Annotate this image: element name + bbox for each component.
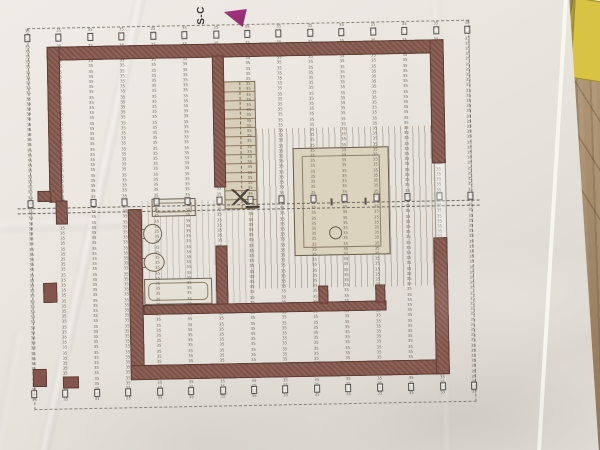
- rafter-line: 35 35 35 35 35 35 35 35 35 35 35 35 35 3…: [337, 22, 352, 402]
- wall-stub-right: [375, 284, 385, 302]
- section-line-break-mark: [246, 206, 260, 208]
- paper-sheet: 35 35 35 35 35 35 35 35 35 35 35 35 35 3…: [0, 0, 600, 450]
- wall-left-extension: [55, 200, 67, 224]
- rafter-line: 35 35 35 35 35 35 35 35 35 35 35 35 35 3…: [180, 25, 195, 405]
- wall-right-upper: [429, 39, 445, 163]
- rafter-line: 35 35 35 35 35 35 35 35 35 35 35 35 35 3…: [23, 28, 38, 408]
- rafter-line: 35 35 35 35 35 35 35 35 35 35 35 35 35 3…: [86, 27, 101, 407]
- pillar: [63, 376, 79, 388]
- window-opening: [434, 163, 447, 237]
- wall-right-lower: [433, 237, 450, 374]
- wall-stub-left: [318, 285, 328, 303]
- wall-room-divider: [212, 55, 227, 187]
- rafter-line: 35 35 35 35 35 35 35 35 35 35 35 35 35 3…: [149, 26, 164, 406]
- rafter-line: 35 35 35 35 35 35 35 35 35 35 35 35 35 3…: [400, 21, 415, 401]
- floor-plan-drawing: 35 35 35 35 35 35 35 35 35 35 35 35 35 3…: [0, 0, 600, 450]
- rafter-line: 35 35 35 35 35 35 35 35 35 35 35 35 35 3…: [306, 23, 321, 403]
- photo-of-floor-plan: 35 35 35 35 35 35 35 35 35 35 35 35 35 3…: [0, 0, 600, 450]
- rafter-line: 35 35 35 35 35 35 35 35 35 35 35 35 35 3…: [275, 23, 290, 403]
- rafter-grid: 35 35 35 35 35 35 35 35 35 35 35 35 35 3…: [27, 20, 474, 408]
- wall-bath-vertical: [215, 245, 228, 305]
- pillar: [33, 369, 47, 387]
- wall-left-jog: [37, 191, 51, 202]
- rafter-line: 35 35 35 35 35 35 35 35 35 35 35 35 35 3…: [463, 20, 478, 400]
- rafter-line: 35 35 35 35 35 35 35 35 35 35 35 35 35 3…: [243, 24, 258, 404]
- rafter-line: 35 35 35 35 35 35 35 35 35 35 35 35 35 3…: [369, 21, 384, 401]
- pillar: [43, 283, 57, 303]
- section-label: S-C: [196, 3, 220, 25]
